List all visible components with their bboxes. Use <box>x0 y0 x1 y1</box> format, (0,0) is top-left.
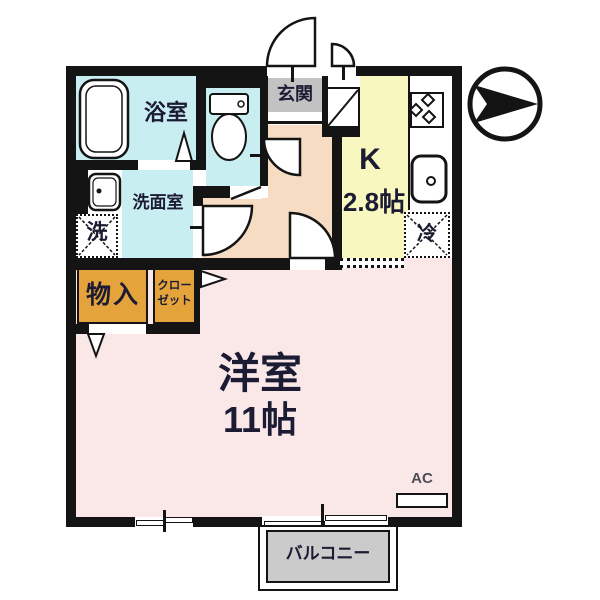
bath-label: 浴室 <box>137 101 195 124</box>
kitchen-size-label: 2.8帖 <box>330 189 418 216</box>
main-room-door-swing-arc <box>290 213 335 258</box>
washbasin-icon <box>89 174 120 210</box>
closet-label: クロー ゼット <box>153 279 196 309</box>
toilet-bowl <box>212 114 246 160</box>
washroom-label: 洗面室 <box>119 194 197 212</box>
main-room-label: 洋室 <box>185 352 335 396</box>
closet-label-line2: ゼット <box>157 295 192 307</box>
balcony-label: バルコニー <box>270 545 386 563</box>
closet-door-triangle <box>201 271 225 287</box>
entrance-label: 玄関 <box>269 85 321 104</box>
stove-icon <box>422 94 434 106</box>
toilet-door-leaf <box>231 187 261 199</box>
fridge-label: 冷 <box>415 224 439 245</box>
toilet-icon <box>210 94 248 114</box>
entry-subdoor-swing-arc <box>332 44 354 66</box>
entry-door-swing-arc <box>267 18 315 66</box>
storage-label: 物入 <box>81 282 145 308</box>
floorplan-canvas: 浴室 洗面室 洗 玄関 K 2.8帖 冷 物入 クロー ゼット 洋室 11帖 A… <box>0 0 600 600</box>
closet-label-line1: クロー <box>157 280 192 292</box>
washroom-door-swing-arc <box>203 206 252 255</box>
bath-folding-door-triangle <box>176 133 192 161</box>
ac-label: AC <box>400 471 444 487</box>
shoe-cabinet-diagonal <box>328 90 358 126</box>
stove-burner-2 <box>410 104 422 116</box>
storage-door-triangle <box>88 334 104 356</box>
laundry-label: 洗 <box>85 222 109 244</box>
toilet-door-swing-arc <box>264 139 300 175</box>
main-room-size-label: 11帖 <box>185 401 335 439</box>
sink-drain-dot <box>427 177 435 185</box>
washbasin-faucet-dot <box>97 189 102 194</box>
stove-burner-3 <box>423 111 435 123</box>
kitchen-label: K <box>352 144 388 176</box>
